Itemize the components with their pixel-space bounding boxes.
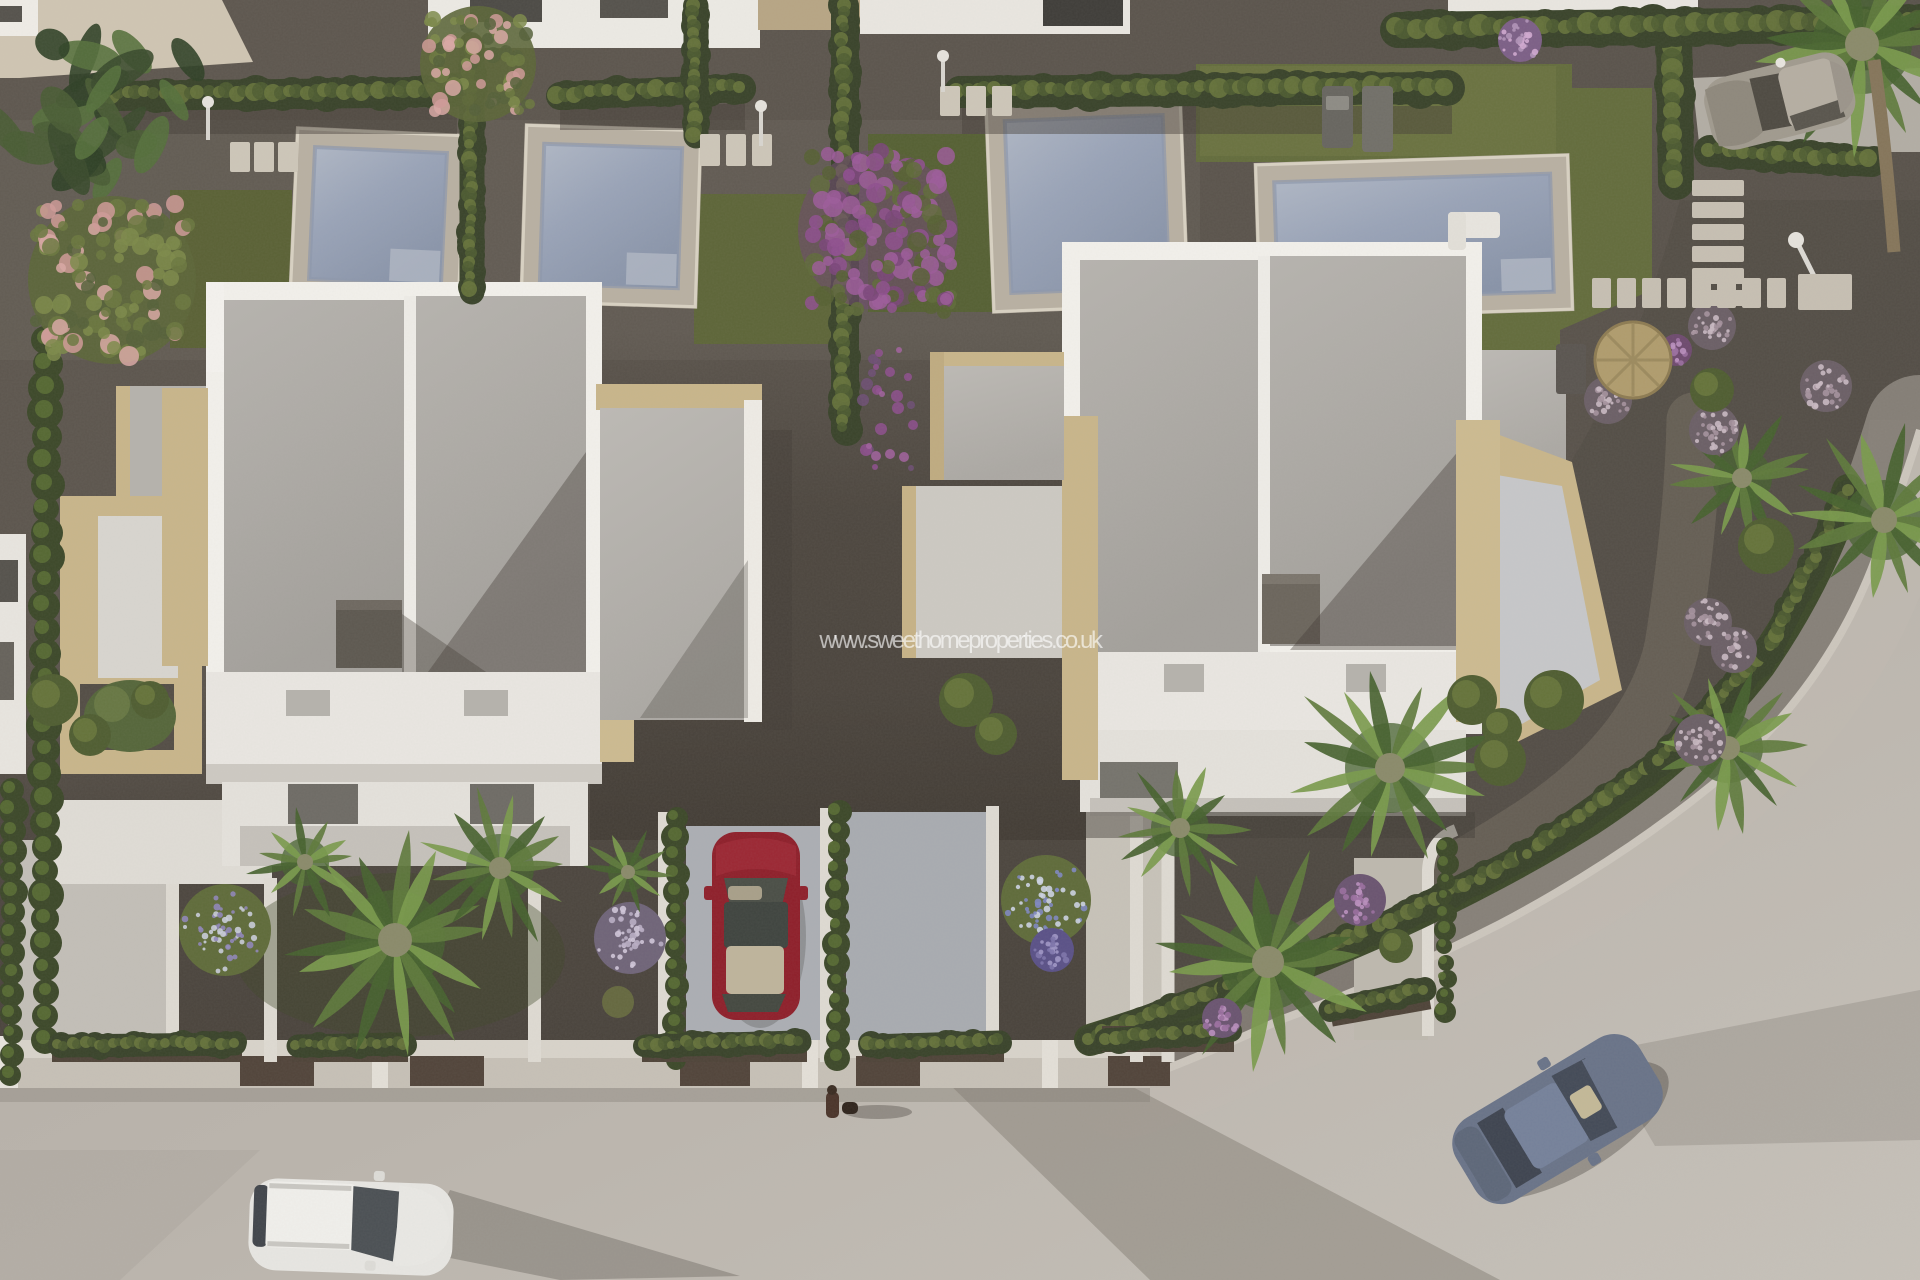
svg-text:www.sweethomeproperties.co.uk: www.sweethomeproperties.co.uk <box>818 627 1104 654</box>
